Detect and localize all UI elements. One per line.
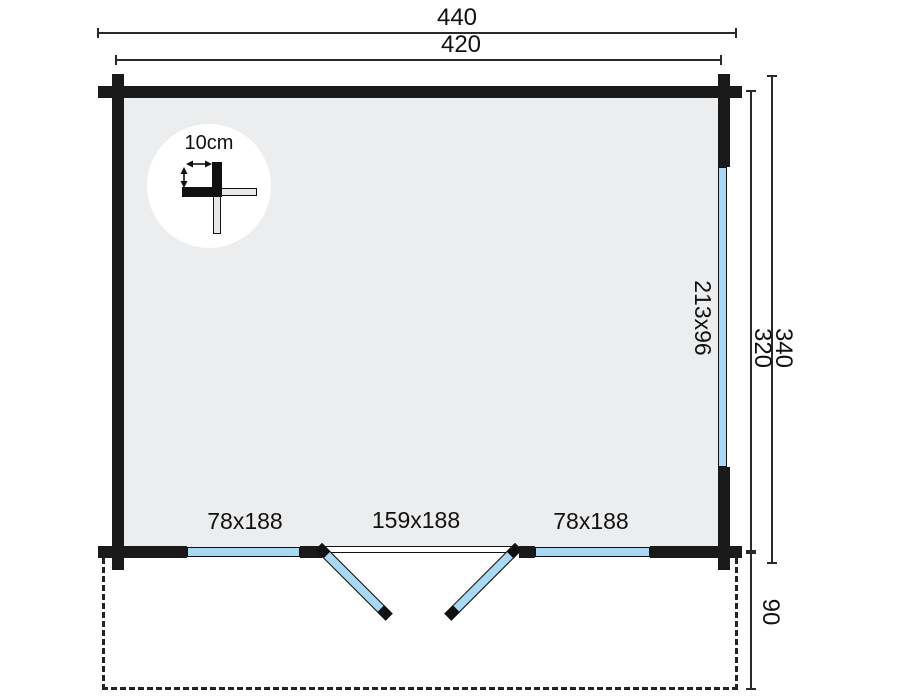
door-threshold	[322, 546, 517, 553]
dim-line-90	[750, 552, 752, 690]
wall-left	[112, 74, 124, 570]
double-door-label: 159x188	[346, 507, 486, 533]
side-window	[718, 167, 727, 467]
wall-bottom-right-pier	[519, 546, 535, 558]
wall-bottom-left-segment	[98, 546, 187, 558]
dim-label-terrace-depth: 90	[757, 562, 783, 662]
wall-right-upper	[718, 74, 730, 167]
dim-tick	[746, 552, 756, 554]
dim-line-420	[115, 59, 722, 61]
dim-label-top-outer: 440	[407, 5, 507, 31]
dim-label-top-inner: 420	[411, 32, 511, 58]
terrace-outline	[102, 558, 738, 690]
bottom-right-window	[535, 547, 650, 557]
wall-bottom-right-segment	[650, 546, 742, 558]
dim-tick	[97, 28, 99, 38]
dim-tick	[720, 55, 722, 65]
floor-plan-canvas: 10cm	[0, 0, 901, 700]
thickness-arrows-icon	[147, 124, 271, 248]
wall-thickness-detail: 10cm	[147, 124, 271, 248]
dim-label-right-inner: 320	[749, 298, 775, 398]
dim-tick	[746, 688, 756, 690]
dim-tick	[767, 75, 777, 77]
dim-tick	[735, 28, 737, 38]
dim-tick	[115, 55, 117, 65]
bottom-left-window	[187, 547, 300, 557]
side-window-label: 213x96	[690, 268, 716, 368]
dim-tick	[746, 90, 756, 92]
wall-top	[98, 86, 742, 98]
bottom-right-window-label: 78x188	[531, 508, 651, 534]
bottom-left-window-label: 78x188	[185, 508, 305, 534]
